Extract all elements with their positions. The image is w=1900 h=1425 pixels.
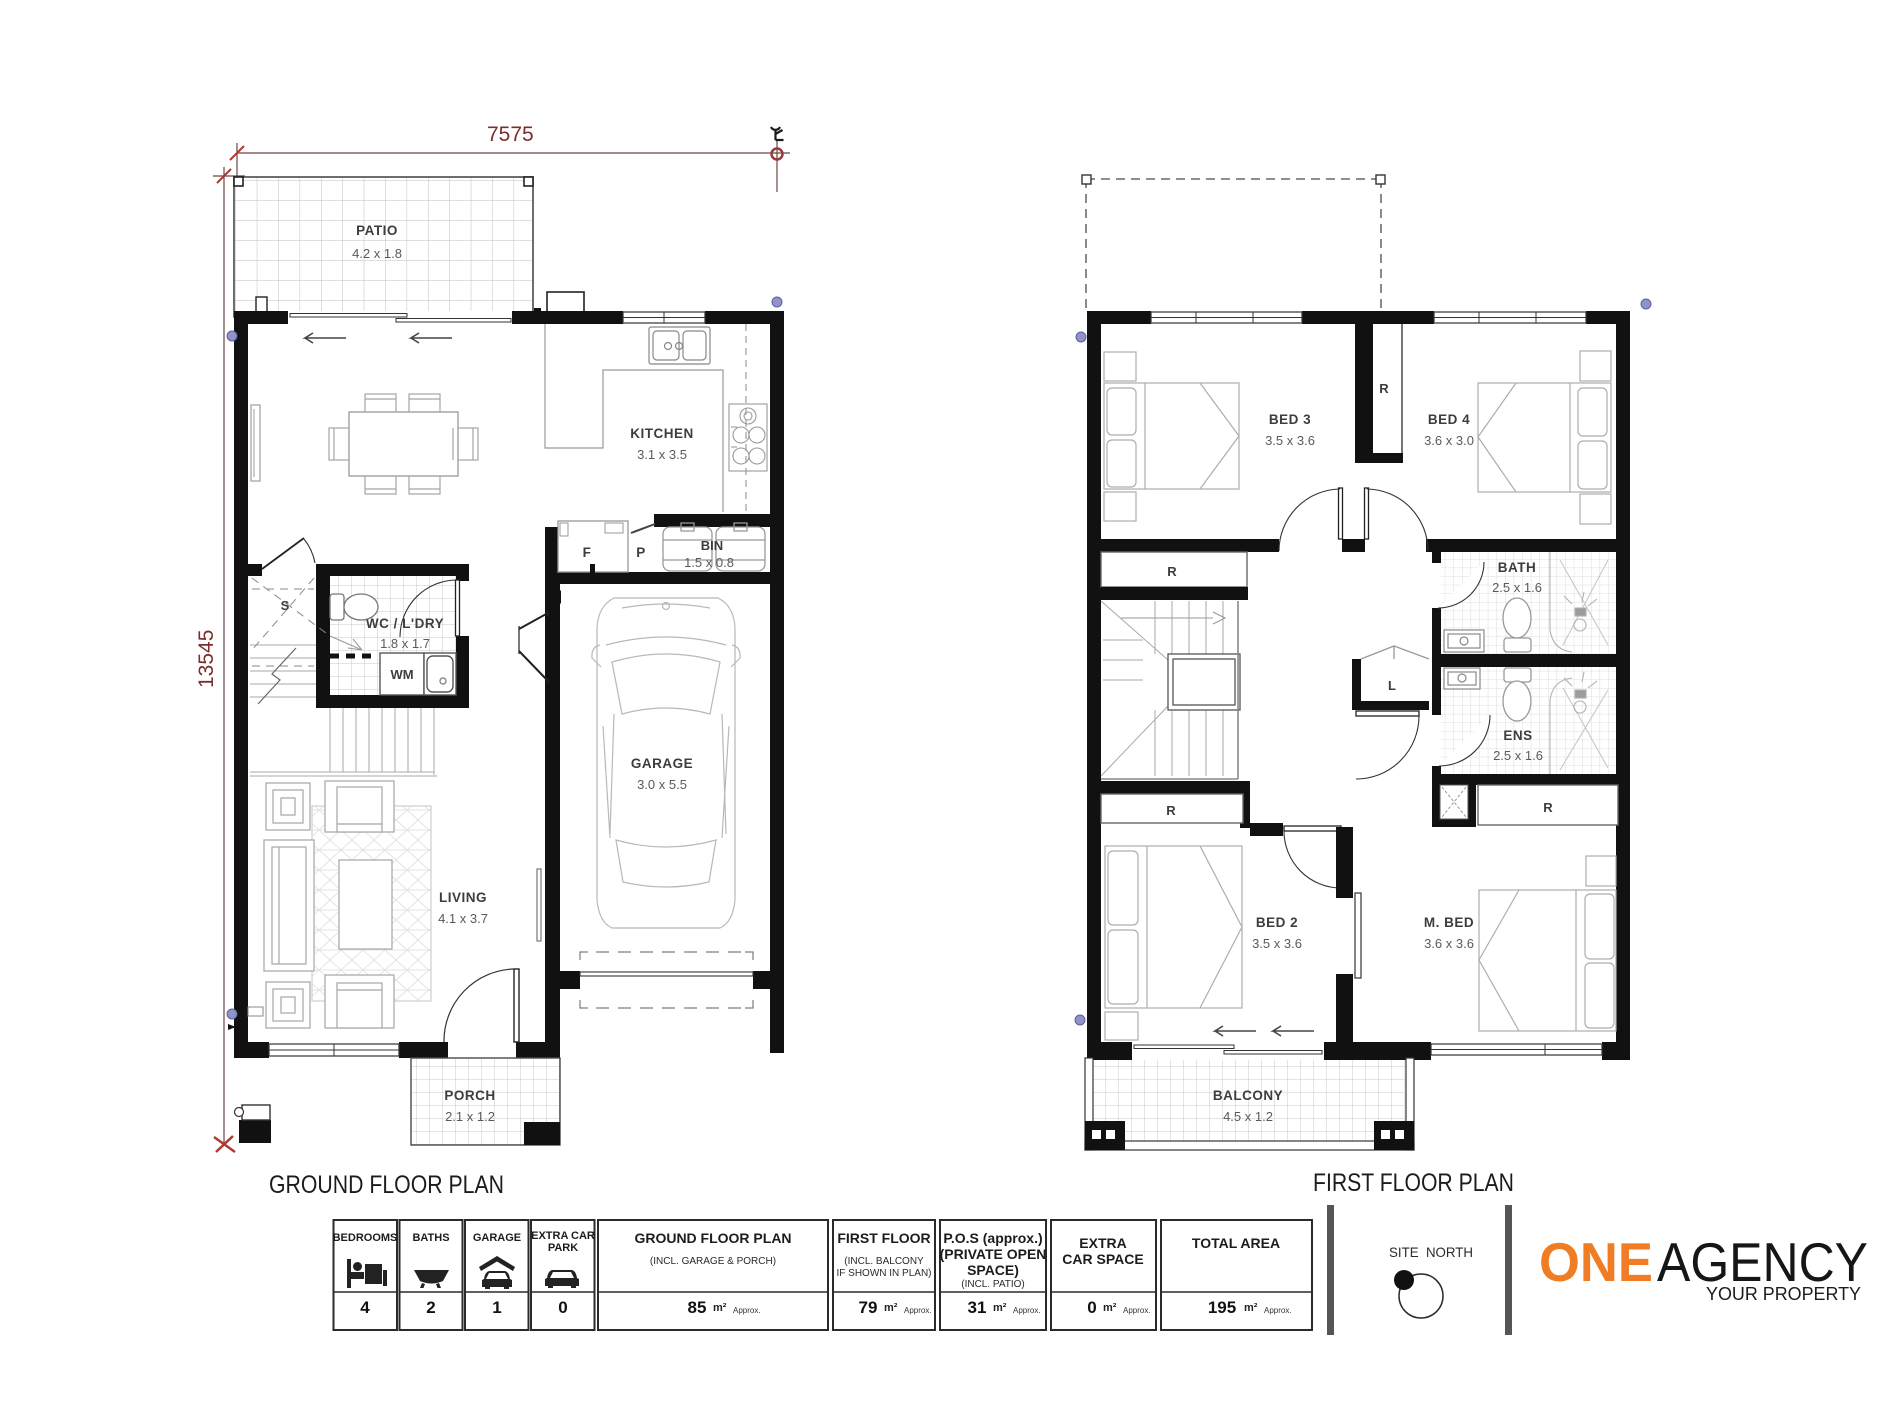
svg-text:79: 79 — [859, 1298, 878, 1317]
svg-text:BED 2: BED 2 — [1256, 915, 1298, 930]
svg-text:3.5 x 3.6: 3.5 x 3.6 — [1265, 433, 1315, 448]
svg-text:0: 0 — [558, 1298, 567, 1317]
svg-text:13545: 13545 — [195, 630, 218, 688]
svg-text:2: 2 — [426, 1298, 435, 1317]
svg-text:SPACE): SPACE) — [967, 1262, 1019, 1278]
svg-text:S: S — [281, 598, 290, 613]
svg-text:1: 1 — [492, 1298, 501, 1317]
svg-text:ENS: ENS — [1503, 728, 1532, 743]
svg-text:m²: m² — [713, 1302, 727, 1314]
svg-text:CAR SPACE: CAR SPACE — [1062, 1251, 1143, 1267]
svg-text:L: L — [1388, 678, 1396, 693]
svg-text:TOTAL AREA: TOTAL AREA — [1192, 1235, 1280, 1251]
svg-text:IF SHOWN IN PLAN): IF SHOWN IN PLAN) — [836, 1268, 931, 1279]
svg-text:4: 4 — [360, 1298, 370, 1317]
svg-text:(INCL. GARAGE & PORCH): (INCL. GARAGE & PORCH) — [650, 1256, 776, 1267]
svg-text:Approx.: Approx. — [1123, 1306, 1151, 1315]
svg-text:0: 0 — [1087, 1298, 1096, 1317]
svg-text:PARK: PARK — [548, 1242, 578, 1254]
svg-text:M. BED: M. BED — [1424, 915, 1474, 930]
svg-text:Approx.: Approx. — [733, 1306, 761, 1315]
svg-text:Approx.: Approx. — [904, 1306, 932, 1315]
svg-text:GROUND FLOOR PLAN: GROUND FLOOR PLAN — [269, 1171, 504, 1199]
svg-text:(INCL. PATIO): (INCL. PATIO) — [961, 1279, 1025, 1290]
svg-text:F: F — [583, 545, 592, 560]
svg-text:R: R — [1166, 803, 1176, 818]
svg-text:FIRST FLOOR: FIRST FLOOR — [837, 1230, 930, 1246]
svg-text:m²: m² — [884, 1302, 898, 1314]
svg-text:BED 3: BED 3 — [1269, 412, 1311, 427]
svg-text:FIRST FLOOR PLAN: FIRST FLOOR PLAN — [1313, 1169, 1514, 1197]
svg-text:195: 195 — [1208, 1298, 1236, 1317]
svg-text:GROUND FLOOR PLAN: GROUND FLOOR PLAN — [634, 1230, 791, 1246]
svg-text:3.0 x 5.5: 3.0 x 5.5 — [637, 777, 687, 792]
svg-text:KITCHEN: KITCHEN — [630, 426, 694, 441]
svg-text:WC / L'DRY: WC / L'DRY — [366, 616, 444, 631]
svg-text:BALCONY: BALCONY — [1213, 1088, 1283, 1103]
svg-text:BATHS: BATHS — [412, 1232, 449, 1244]
svg-text:Approx.: Approx. — [1013, 1306, 1041, 1315]
svg-text:85: 85 — [688, 1298, 707, 1317]
svg-text:BIN: BIN — [701, 538, 723, 553]
svg-text:4.5 x 1.2: 4.5 x 1.2 — [1223, 1109, 1273, 1124]
svg-text:31: 31 — [968, 1298, 987, 1317]
svg-text:1.8 x 1.7: 1.8 x 1.7 — [380, 636, 430, 651]
svg-text:4.2 x 1.8: 4.2 x 1.8 — [352, 246, 402, 261]
svg-text:R: R — [1167, 564, 1177, 579]
svg-text:BEDROOMS: BEDROOMS — [333, 1232, 398, 1244]
svg-text:3.6 x 3.0: 3.6 x 3.0 — [1424, 433, 1474, 448]
svg-text:4.1 x 3.7: 4.1 x 3.7 — [438, 911, 488, 926]
svg-text:LIVING: LIVING — [439, 890, 487, 905]
svg-text:(PRIVATE OPEN: (PRIVATE OPEN — [940, 1246, 1047, 1262]
svg-text:GARAGE: GARAGE — [473, 1232, 521, 1244]
svg-text:1.5 x 0.8: 1.5 x 0.8 — [684, 555, 734, 570]
svg-text:m²: m² — [993, 1302, 1007, 1314]
svg-text:ONE: ONE — [1539, 1231, 1653, 1293]
svg-text:2.5 x 1.6: 2.5 x 1.6 — [1493, 748, 1543, 763]
svg-text:m²: m² — [1103, 1302, 1117, 1314]
svg-text:YOUR PROPERTY: YOUR PROPERTY — [1706, 1284, 1861, 1304]
svg-text:m²: m² — [1244, 1302, 1258, 1314]
svg-text:(INCL. BALCONY: (INCL. BALCONY — [844, 1256, 924, 1267]
svg-text:3.6 x 3.6: 3.6 x 3.6 — [1424, 936, 1474, 951]
svg-text:EXTRA CAR: EXTRA CAR — [531, 1230, 595, 1242]
svg-text:SITE NORTH: SITE NORTH — [1389, 1244, 1473, 1260]
svg-text:7575: 7575 — [487, 123, 534, 146]
svg-text:GARAGE: GARAGE — [631, 756, 693, 771]
svg-text:3.1 x 3.5: 3.1 x 3.5 — [637, 447, 687, 462]
svg-text:BED 4: BED 4 — [1428, 412, 1470, 427]
svg-text:BATH: BATH — [1498, 560, 1537, 575]
svg-text:2.1 x 1.2: 2.1 x 1.2 — [445, 1109, 495, 1124]
svg-text:R: R — [1543, 800, 1553, 815]
svg-text:PORCH: PORCH — [444, 1088, 495, 1103]
svg-text:EXTRA: EXTRA — [1079, 1235, 1126, 1251]
svg-text:Approx.: Approx. — [1264, 1306, 1292, 1315]
svg-text:P: P — [636, 545, 646, 560]
svg-text:WM: WM — [390, 667, 413, 682]
svg-text:P.O.S (approx.): P.O.S (approx.) — [943, 1230, 1042, 1246]
svg-text:2.5 x 1.6: 2.5 x 1.6 — [1492, 580, 1542, 595]
svg-text:3.5 x 3.6: 3.5 x 3.6 — [1252, 936, 1302, 951]
svg-text:R: R — [1379, 381, 1389, 396]
svg-text:PATIO: PATIO — [356, 223, 398, 238]
